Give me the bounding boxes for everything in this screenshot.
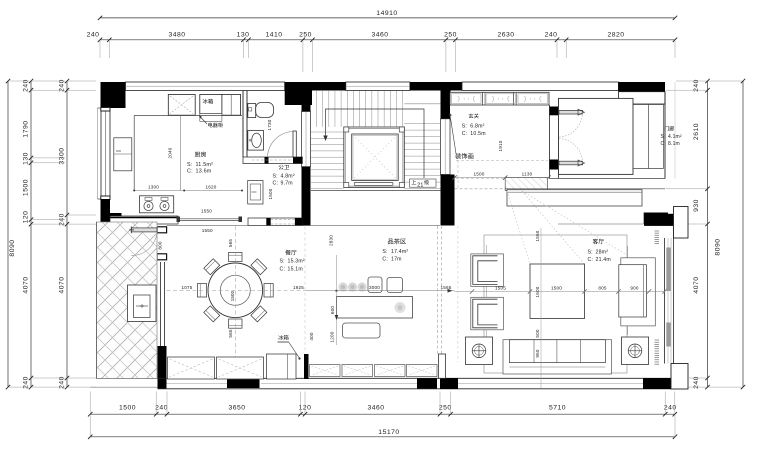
svg-text:8090: 8090 xyxy=(715,238,722,255)
svg-text:565: 565 xyxy=(228,239,233,248)
svg-text:1565: 1565 xyxy=(440,285,451,290)
svg-text:13.6m: 13.6m xyxy=(196,169,212,175)
svg-text:C:: C: xyxy=(187,169,193,175)
svg-text:1500: 1500 xyxy=(551,286,562,291)
svg-text:950: 950 xyxy=(535,349,540,358)
svg-text:3460: 3460 xyxy=(367,405,384,412)
svg-text:250: 250 xyxy=(299,32,312,39)
svg-text:1500: 1500 xyxy=(23,179,30,196)
svg-text:C:: C: xyxy=(588,257,594,263)
svg-text:1130: 1130 xyxy=(522,171,533,176)
svg-text:4070: 4070 xyxy=(59,276,66,293)
svg-text:3460: 3460 xyxy=(371,32,388,39)
svg-text:1550: 1550 xyxy=(535,230,540,241)
svg-text:250: 250 xyxy=(444,32,457,39)
svg-text:1075: 1075 xyxy=(181,285,192,290)
svg-text:130: 130 xyxy=(237,32,250,39)
svg-text:930: 930 xyxy=(693,199,700,212)
svg-text:240: 240 xyxy=(87,32,100,39)
svg-text:S:: S: xyxy=(661,134,666,140)
svg-text:17.4m²: 17.4m² xyxy=(391,249,408,255)
svg-text:900: 900 xyxy=(630,286,639,291)
svg-text:1500: 1500 xyxy=(268,188,273,199)
svg-text:S:: S: xyxy=(588,249,593,255)
svg-text:4070: 4070 xyxy=(23,276,30,293)
svg-text:565: 565 xyxy=(228,329,233,338)
svg-text:15170: 15170 xyxy=(378,429,399,436)
svg-text:800: 800 xyxy=(158,241,163,250)
svg-text:C:: C: xyxy=(661,141,666,147)
svg-text:805: 805 xyxy=(598,286,607,291)
svg-text:28m²: 28m² xyxy=(596,249,609,255)
svg-text:2610: 2610 xyxy=(693,123,700,140)
svg-text:1790: 1790 xyxy=(23,120,30,137)
svg-text:2820: 2820 xyxy=(607,32,624,39)
svg-text:2830: 2830 xyxy=(329,235,334,246)
svg-text:3650: 3650 xyxy=(228,405,245,412)
svg-text:4070: 4070 xyxy=(693,276,700,293)
svg-text:240: 240 xyxy=(545,32,558,39)
svg-text:250: 250 xyxy=(439,405,452,412)
svg-text:C:: C: xyxy=(382,257,388,263)
svg-text:1620: 1620 xyxy=(205,185,216,190)
svg-text:1910: 1910 xyxy=(498,140,503,151)
svg-text:4.8m²: 4.8m² xyxy=(281,173,295,179)
svg-text:1550: 1550 xyxy=(201,208,212,213)
svg-text:3480: 3480 xyxy=(168,32,185,39)
svg-text:9.7m: 9.7m xyxy=(281,181,293,187)
svg-text:1550: 1550 xyxy=(202,228,213,233)
svg-text:11.5m²: 11.5m² xyxy=(196,162,214,168)
svg-text:600: 600 xyxy=(330,306,335,315)
svg-text:2630: 2630 xyxy=(497,32,514,39)
svg-text:8090: 8090 xyxy=(9,239,16,256)
svg-text:4.1m²: 4.1m² xyxy=(668,134,682,140)
svg-text:2040: 2040 xyxy=(168,147,173,158)
svg-text:3300: 3300 xyxy=(59,147,66,164)
svg-text:240: 240 xyxy=(155,405,168,412)
svg-text:10.5m: 10.5m xyxy=(470,131,485,137)
svg-text:15.3m²: 15.3m² xyxy=(288,258,305,264)
svg-text:C:: C: xyxy=(280,266,286,272)
svg-text:S:: S: xyxy=(382,249,387,255)
svg-text:1505: 1505 xyxy=(495,286,506,291)
svg-text:1500: 1500 xyxy=(119,405,136,412)
svg-text:1500: 1500 xyxy=(230,290,235,301)
svg-text:3000: 3000 xyxy=(369,285,380,290)
svg-text:14910: 14910 xyxy=(376,10,397,17)
svg-text:6.8m²: 6.8m² xyxy=(470,124,484,130)
svg-text:1500: 1500 xyxy=(473,171,484,176)
svg-text:130: 130 xyxy=(23,152,30,165)
svg-text:400: 400 xyxy=(309,332,314,341)
svg-text:21: 21 xyxy=(417,182,423,188)
svg-text:8.1m: 8.1m xyxy=(668,141,680,147)
svg-text:1730: 1730 xyxy=(267,119,272,130)
svg-text:S:: S: xyxy=(273,173,278,179)
svg-text:120: 120 xyxy=(23,211,30,224)
svg-text:1410: 1410 xyxy=(265,32,282,39)
svg-text:1200: 1200 xyxy=(330,331,335,342)
svg-text:1300: 1300 xyxy=(148,185,159,190)
svg-text:1500: 1500 xyxy=(535,286,540,297)
svg-text:21.4m: 21.4m xyxy=(596,257,611,263)
svg-text:S:: S: xyxy=(462,124,467,130)
svg-text:S:: S: xyxy=(280,258,285,264)
svg-text:5710: 5710 xyxy=(549,405,566,412)
svg-text:17m: 17m xyxy=(391,257,402,263)
svg-text:C:: C: xyxy=(462,131,468,137)
svg-text:S:: S: xyxy=(187,162,193,168)
svg-text:500: 500 xyxy=(535,329,540,338)
svg-text:C:: C: xyxy=(273,181,279,187)
svg-text:1925: 1925 xyxy=(293,285,304,290)
svg-text:15.1m: 15.1m xyxy=(288,266,303,272)
